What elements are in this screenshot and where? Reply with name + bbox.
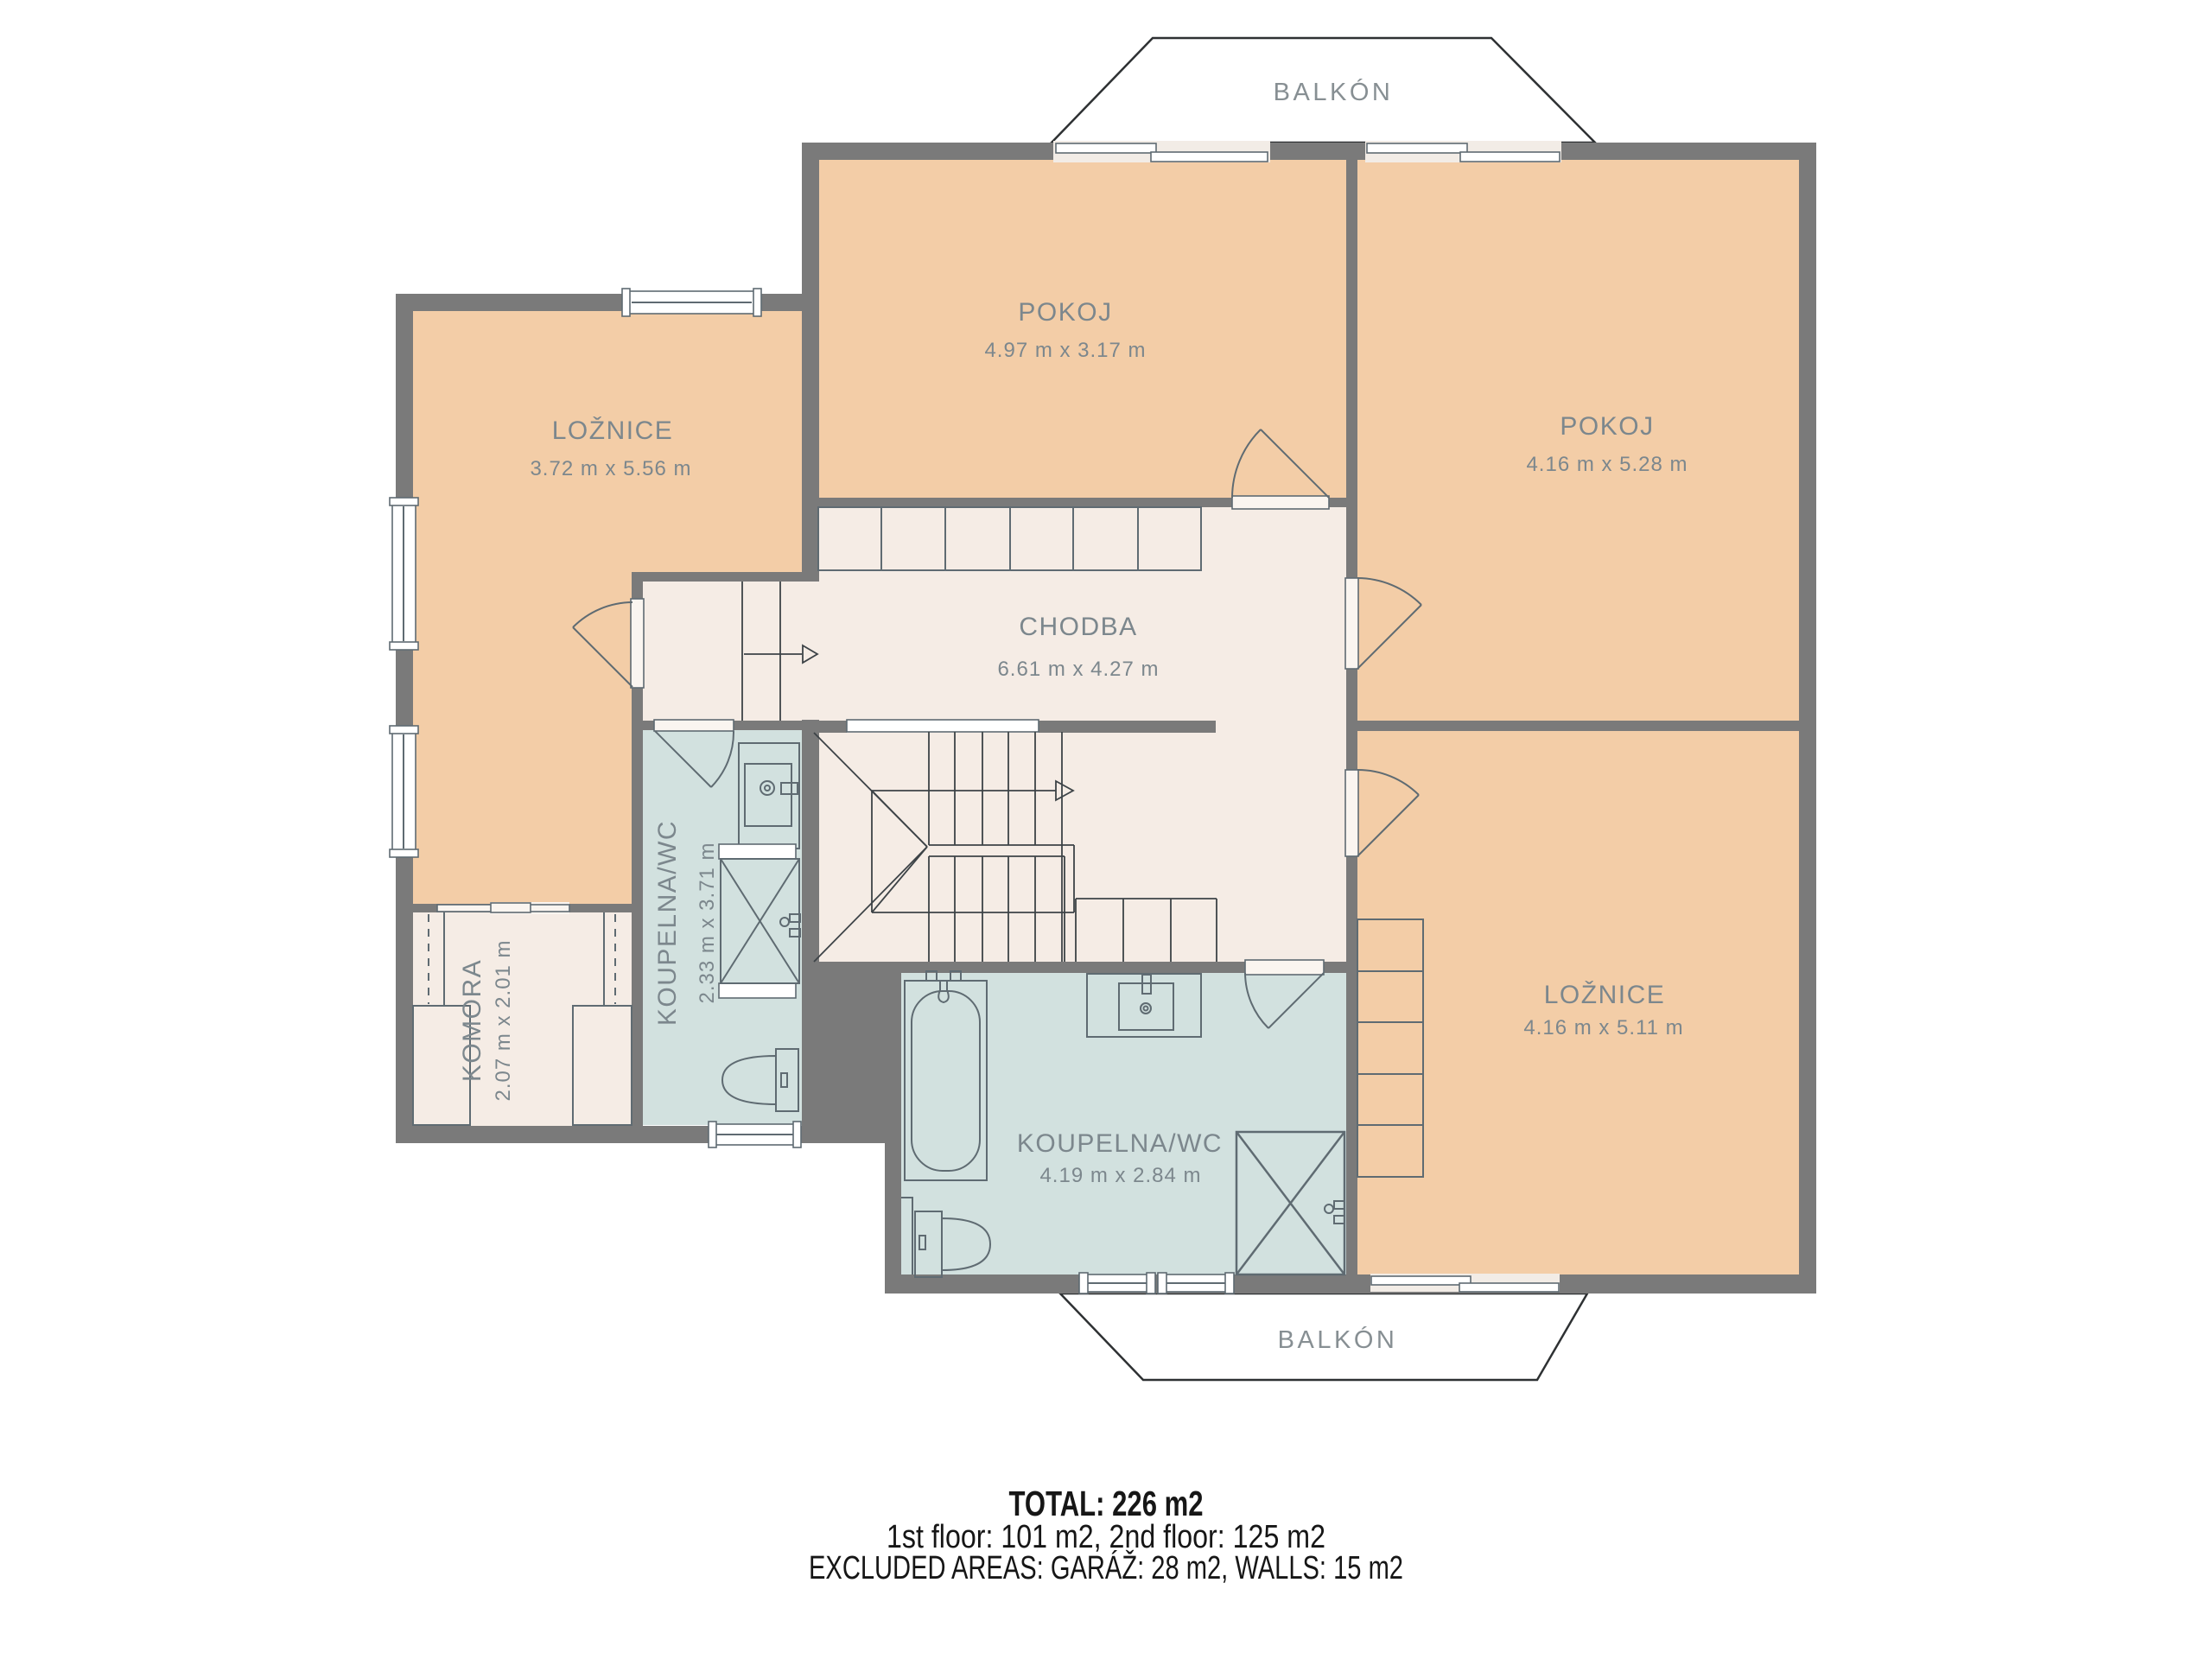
svg-text:6.61 m x 4.27 m: 6.61 m x 4.27 m (997, 658, 1159, 681)
svg-text:EXCLUDED AREAS: GARÁŽ: 28 m2,: EXCLUDED AREAS: GARÁŽ: 28 m2, WALLS: 15 … (809, 1549, 1403, 1586)
svg-text:2.07 m x 2.01 m: 2.07 m x 2.01 m (492, 939, 515, 1101)
svg-text:CHODBA: CHODBA (1019, 613, 1137, 641)
svg-text:4.16 m x 5.11 m: 4.16 m x 5.11 m (1523, 1016, 1683, 1039)
svg-text:TOTAL: 226 m2: TOTAL: 226 m2 (1009, 1484, 1204, 1523)
svg-text:3.72 m x 5.56 m: 3.72 m x 5.56 m (530, 457, 691, 480)
svg-text:LOŽNICE: LOŽNICE (552, 416, 674, 445)
svg-text:4.19 m x 2.84 m: 4.19 m x 2.84 m (1039, 1164, 1201, 1187)
svg-text:BALKÓN: BALKÓN (1278, 1325, 1398, 1354)
svg-text:2.33 m x 3.71 m: 2.33 m x 3.71 m (696, 842, 719, 1003)
svg-text:BALKÓN: BALKÓN (1274, 78, 1394, 106)
svg-text:KOUPELNA/WC: KOUPELNA/WC (1017, 1129, 1223, 1158)
svg-text:POKOJ: POKOJ (1018, 298, 1112, 327)
svg-text:KOMORA: KOMORA (458, 959, 486, 1082)
svg-text:4.97 m x 3.17 m: 4.97 m x 3.17 m (984, 339, 1146, 362)
svg-text:POKOJ: POKOJ (1560, 412, 1654, 441)
svg-text:KOUPELNA/WC: KOUPELNA/WC (653, 820, 682, 1026)
svg-text:4.16 m x 5.28 m: 4.16 m x 5.28 m (1526, 453, 1688, 476)
svg-text:LOŽNICE: LOŽNICE (1544, 981, 1666, 1009)
